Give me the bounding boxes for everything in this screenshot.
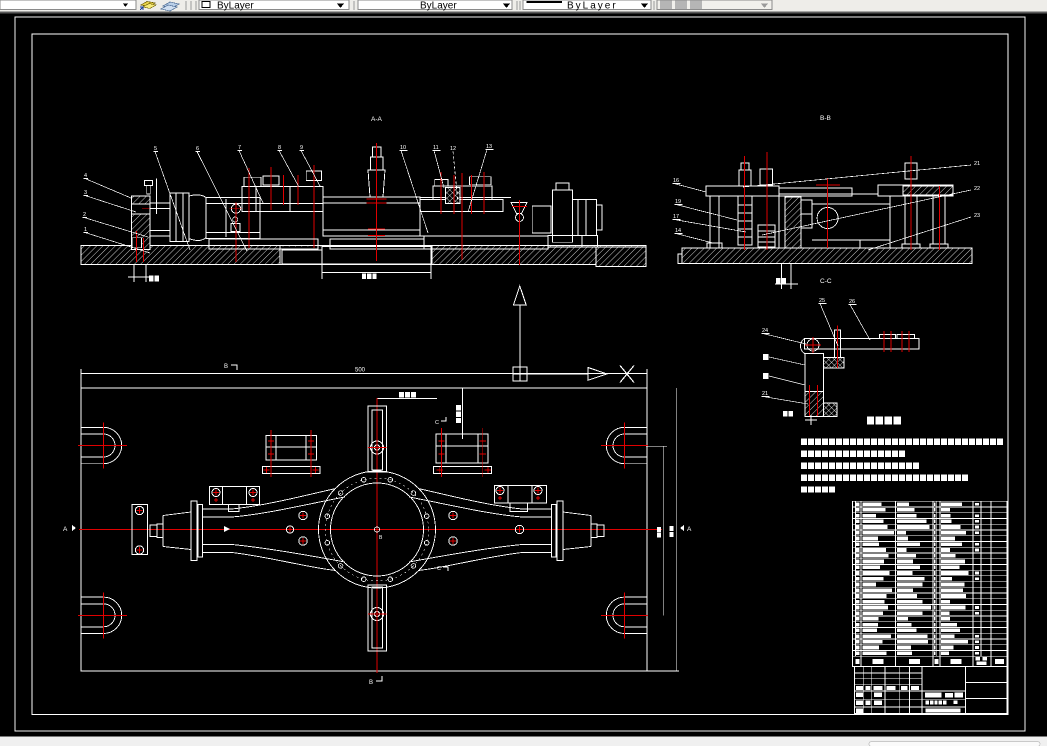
svg-text:C-C: C-C (820, 278, 832, 285)
svg-text:12: 12 (450, 146, 456, 152)
svg-text:B: B (224, 364, 228, 370)
svg-text:A-A: A-A (371, 116, 383, 123)
svg-text:500: 500 (355, 368, 366, 374)
svg-text:21: 21 (974, 161, 980, 167)
svg-text:A: A (63, 526, 68, 533)
svg-text:23: 23 (974, 213, 980, 219)
svg-text:B: B (369, 680, 373, 686)
svg-text:ByLayer: ByLayer (567, 1, 618, 12)
svg-text:B-B: B-B (820, 115, 831, 122)
svg-text:A: A (687, 526, 692, 533)
svg-text:22: 22 (974, 186, 980, 192)
svg-text:C: C (435, 420, 439, 426)
svg-text:ByLayer: ByLayer (217, 1, 254, 12)
svg-text:ByLayer: ByLayer (420, 1, 457, 12)
svg-text:C: C (437, 566, 441, 572)
